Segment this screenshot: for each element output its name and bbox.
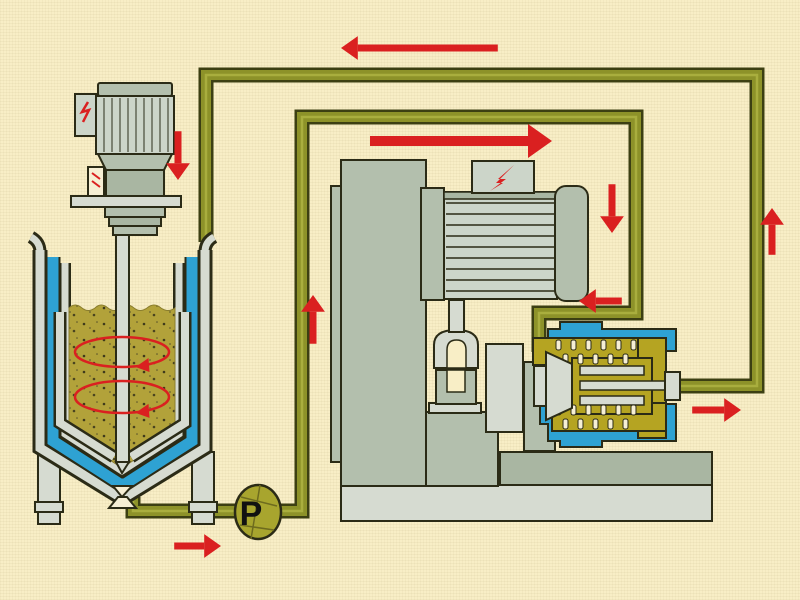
agitator-coupling xyxy=(106,170,164,198)
process-diagram: P xyxy=(0,0,800,600)
flow-arrow-mill-inlet-down xyxy=(600,184,624,233)
mid-slab xyxy=(486,344,523,432)
machine-support-bar xyxy=(500,452,712,485)
agitator-motor-cap xyxy=(98,83,172,96)
mounting-plate xyxy=(71,196,181,207)
flow-arrow-tank-outlet-right xyxy=(174,534,221,558)
shaft-gland-rings xyxy=(105,207,165,235)
pump-label: P xyxy=(240,495,263,533)
agitator-motor-body xyxy=(96,96,174,170)
agitator-name-tag xyxy=(88,167,104,197)
machine-column xyxy=(341,160,426,486)
circulation-mill-diagram: P xyxy=(0,0,800,600)
motor-terminal-box xyxy=(472,161,534,193)
circulation-pump: P xyxy=(235,485,281,539)
drive-shaft xyxy=(449,300,464,332)
bead-mill-chamber xyxy=(533,322,680,447)
spindle-bearing-dome xyxy=(434,330,478,368)
motor-flange xyxy=(421,188,444,300)
mill-drive-motor xyxy=(444,186,588,301)
flow-arrow-feed-forward-right xyxy=(370,124,552,158)
motor-end-cap xyxy=(555,186,588,301)
flow-arrow-return-to-tank-left xyxy=(341,36,498,60)
spindle-bearing-block xyxy=(436,370,476,404)
flow-arrow-mill-outlet-right xyxy=(692,398,741,422)
mill-outlet-flange xyxy=(665,372,680,400)
machine-base-plate xyxy=(341,485,712,521)
agitator-drive xyxy=(71,83,181,235)
mixing-tank xyxy=(31,200,217,524)
